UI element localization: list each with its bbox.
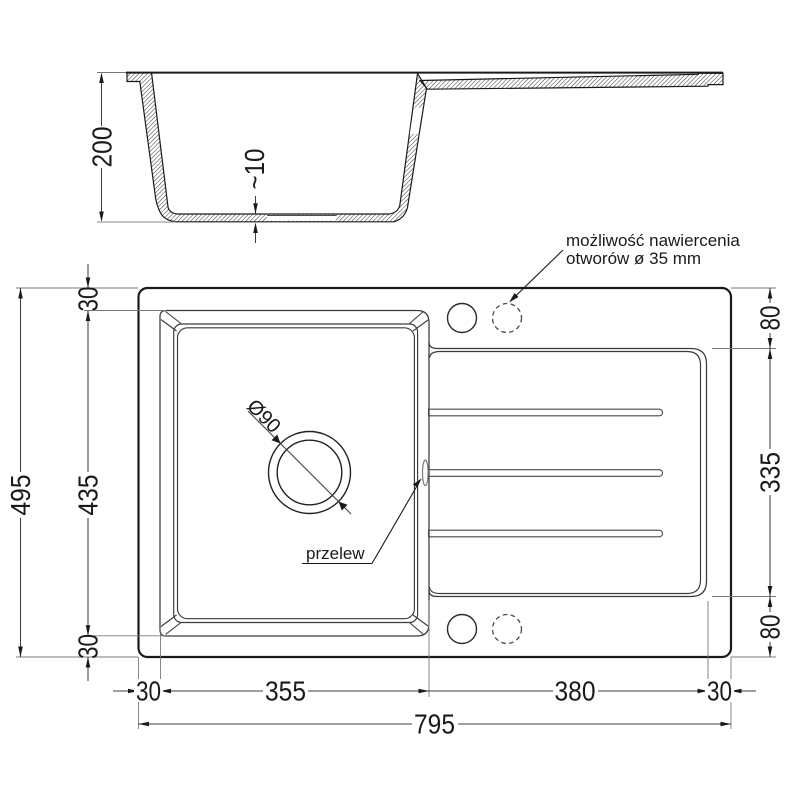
svg-text:30: 30 xyxy=(707,676,732,707)
svg-text:30: 30 xyxy=(73,287,104,312)
svg-text:795: 795 xyxy=(414,709,455,740)
svg-text:80: 80 xyxy=(755,306,786,331)
svg-text:otworów ø 35 mm: otworów ø 35 mm xyxy=(566,249,701,268)
svg-text:80: 80 xyxy=(755,615,786,640)
svg-text:335: 335 xyxy=(755,452,786,493)
svg-text:355: 355 xyxy=(265,676,306,707)
svg-text:380: 380 xyxy=(555,676,596,707)
svg-text:30: 30 xyxy=(136,676,161,707)
svg-text:495: 495 xyxy=(5,475,36,516)
svg-text:200: 200 xyxy=(87,127,118,168)
svg-text:przelew: przelew xyxy=(306,544,365,563)
svg-text:435: 435 xyxy=(73,475,104,516)
svg-text:30: 30 xyxy=(73,634,104,659)
svg-text:~10: ~10 xyxy=(239,149,270,190)
svg-text:możliwość nawiercenia: możliwość nawiercenia xyxy=(566,231,740,250)
